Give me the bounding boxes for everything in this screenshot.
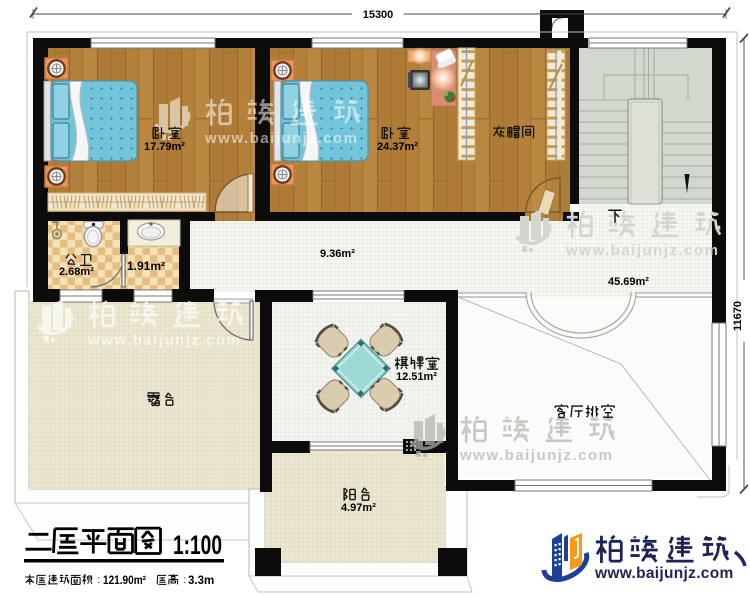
svg-text:45.69m²: 45.69m² <box>608 276 649 288</box>
svg-text:2.68m²: 2.68m² <box>59 266 94 278</box>
svg-text:4.97m²: 4.97m² <box>341 502 376 514</box>
svg-text:www.baijunjz.com: www.baijunjz.com <box>459 447 613 464</box>
svg-text:15300: 15300 <box>363 9 394 21</box>
svg-text:www.baijunjz.com: www.baijunjz.com <box>565 242 719 259</box>
svg-text:121.90m²: 121.90m² <box>103 573 146 587</box>
svg-text:www.baijunjz.com: www.baijunjz.com <box>204 130 358 147</box>
svg-text:9.36m²: 9.36m² <box>320 248 355 260</box>
svg-text:www.baijunjz.com: www.baijunjz.com <box>594 565 734 582</box>
svg-text:17.79m²: 17.79m² <box>144 141 185 153</box>
svg-text:11670: 11670 <box>732 301 744 331</box>
svg-text:12.51m²: 12.51m² <box>396 371 437 383</box>
svg-text:www.baijunjz.com: www.baijunjz.com <box>87 332 241 349</box>
svg-text:1:100: 1:100 <box>173 530 222 560</box>
svg-text:3.3m: 3.3m <box>188 575 214 587</box>
svg-text:24.37m²: 24.37m² <box>377 141 418 153</box>
svg-text:1.91m²: 1.91m² <box>127 259 165 273</box>
